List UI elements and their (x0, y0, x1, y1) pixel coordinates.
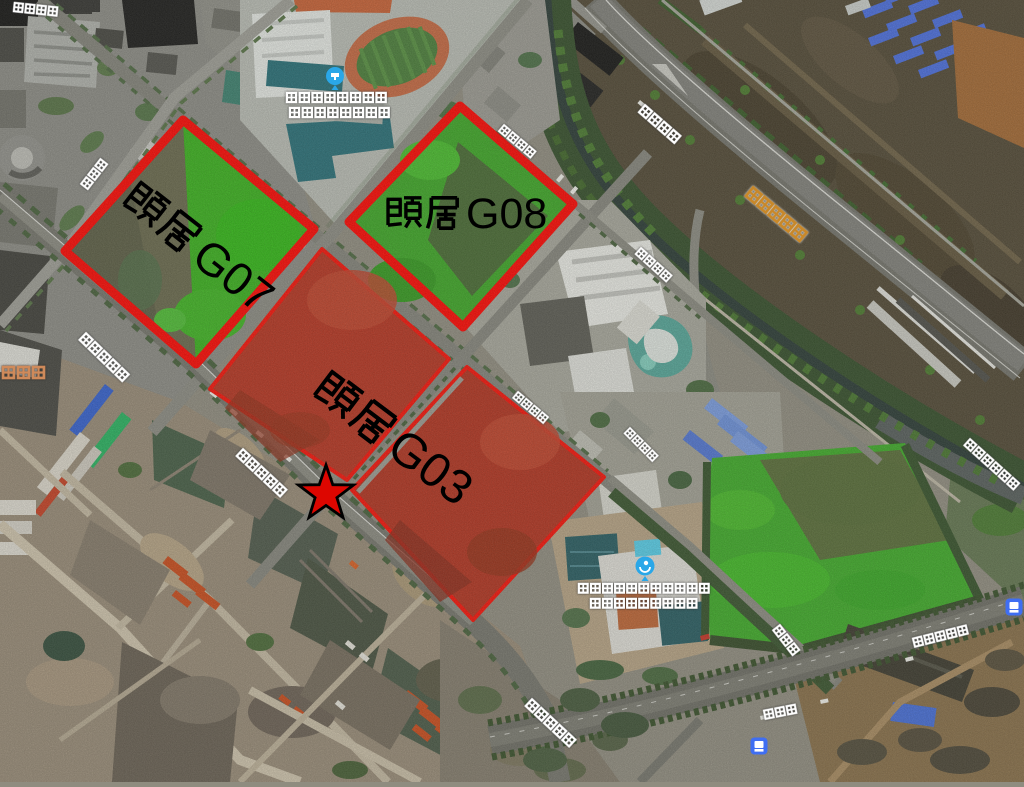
svg-text:G08: G08 (466, 190, 547, 238)
